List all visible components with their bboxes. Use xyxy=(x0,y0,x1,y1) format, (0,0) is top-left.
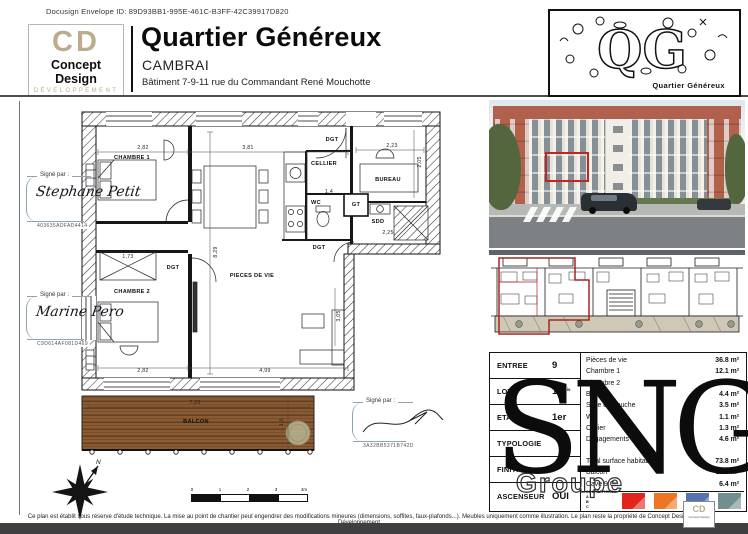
photo-parapet xyxy=(493,106,741,120)
city-label: CAMBRAI xyxy=(142,57,209,73)
photo-parked-car xyxy=(697,199,731,210)
dressing xyxy=(100,252,156,280)
scalebar-tick: 1 xyxy=(219,487,222,492)
cd-mini-name: Concept Design xyxy=(684,515,714,519)
cd-logo-name: Concept Design xyxy=(29,58,123,86)
concept-design-logo: CD Concept Design DÉVELOPPEMENT xyxy=(28,24,124,97)
furniture xyxy=(86,140,428,370)
site-plan-drawing xyxy=(489,250,745,350)
scalebar-segment xyxy=(220,494,250,502)
scale-bar: 01234m xyxy=(192,489,308,501)
scalebar-tick: 2 xyxy=(247,487,250,492)
signature-scribble-icon xyxy=(357,408,447,438)
photo-glass-section xyxy=(629,119,707,210)
header-divider xyxy=(131,26,133,92)
signature-code: C9D614AF081D469 xyxy=(35,341,90,347)
signature-stamp-2: Signé par : Marine Pero C9D614AF081D469 xyxy=(26,296,131,340)
page: Docusign Envelope ID: 89D93BB1-995E-461C… xyxy=(0,0,748,534)
scalebar-tick: 3 xyxy=(275,487,278,492)
compass-rose xyxy=(52,464,108,520)
quartier-genereux-logo: QG Quartier Généreux xyxy=(548,9,741,97)
cd-mini-initials: CD xyxy=(684,504,714,515)
cd-mini-logo: CD Concept Design xyxy=(683,501,715,528)
level-site-plan xyxy=(489,250,745,350)
bottom-bar xyxy=(0,523,748,534)
qg-doodle-icon: QG xyxy=(550,11,735,91)
scalebar-tick: 0 xyxy=(191,487,194,492)
scalebar-segment xyxy=(249,494,279,502)
compass-icon xyxy=(52,464,108,520)
adaptation-letter: C xyxy=(586,505,589,510)
docusign-envelope-id: Docusign Envelope ID: 89D93BB1-995E-461C… xyxy=(46,7,289,16)
signature-stamp-1: Signé par : Stephane Petit 403635ADFAD44… xyxy=(26,176,131,222)
signature-label: Signé par : xyxy=(37,292,72,298)
building-address: Bâtiment 7-9-11 rue du Commandant René M… xyxy=(142,77,370,88)
photo-tree xyxy=(725,134,745,204)
cd-logo-tagline: DÉVELOPPEMENT xyxy=(29,88,123,94)
qg-caption: Quartier Généreux xyxy=(652,81,725,90)
stair-core xyxy=(607,290,635,316)
scalebar-segment xyxy=(191,494,221,502)
signature-name: Stephane Petit xyxy=(35,184,142,200)
signature-code: 3A32BB5371B742D xyxy=(361,443,416,449)
signature-stamp-3: Signé par : 3A32BB5371B742D xyxy=(352,402,449,442)
gt-shaft xyxy=(344,194,368,216)
scalebar-tick: 4m xyxy=(301,487,307,492)
scalebar-segment xyxy=(278,494,308,502)
scalebar-segments xyxy=(192,494,308,502)
signature-name: Marine Pero xyxy=(35,304,125,320)
signature-code: 403635ADFAD4414 xyxy=(35,223,89,229)
page-title: Quartier Généreux xyxy=(141,22,382,53)
car-window xyxy=(591,195,617,201)
cd-logo-initials: CD xyxy=(29,28,123,57)
unit-highlight-box xyxy=(545,152,589,182)
balcony xyxy=(82,396,314,454)
sheet-edge-line xyxy=(19,101,20,515)
compass-north-label: N xyxy=(96,459,101,466)
building-photo xyxy=(489,100,745,248)
photo-car xyxy=(581,193,637,211)
car-wheel xyxy=(589,207,596,214)
qg-letters: QG xyxy=(597,20,687,81)
signature-label: Signé par : xyxy=(363,398,398,404)
signature-label: Signé par : xyxy=(37,172,72,178)
car-wheel xyxy=(623,207,630,214)
groupe-watermark: Groupe xyxy=(516,468,624,499)
